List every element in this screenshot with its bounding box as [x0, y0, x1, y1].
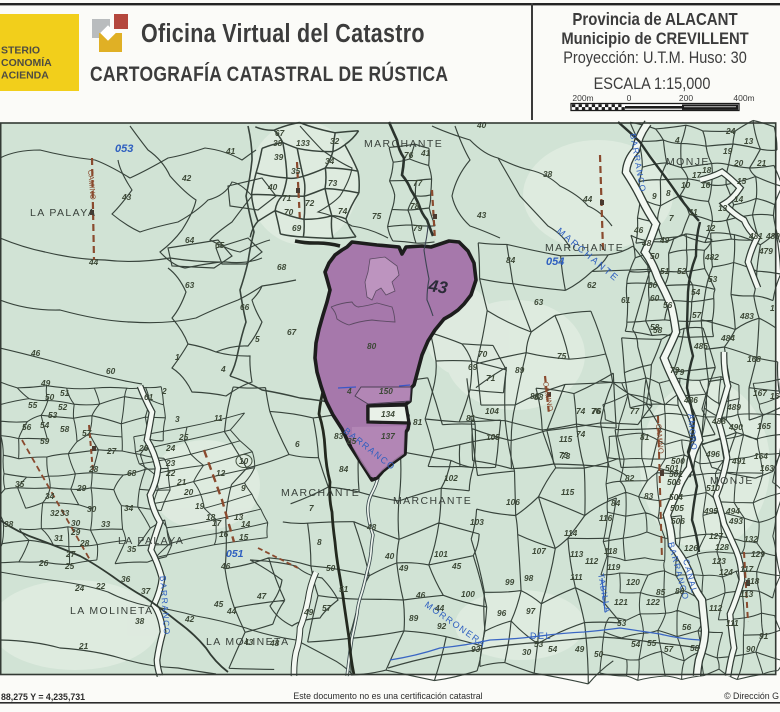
svg-text:63: 63: [534, 297, 544, 307]
svg-text:13: 13: [718, 203, 728, 213]
svg-text:484: 484: [720, 333, 735, 343]
svg-text:Municipio de CREVILLENT: Municipio de CREVILLENT: [561, 30, 749, 48]
svg-text:50: 50: [650, 251, 660, 261]
svg-text:493: 493: [728, 516, 743, 526]
svg-text:92: 92: [437, 621, 447, 631]
svg-text:104: 104: [485, 406, 499, 416]
svg-text:81: 81: [413, 417, 423, 427]
svg-text:24: 24: [725, 126, 736, 136]
svg-text:98: 98: [524, 573, 534, 583]
svg-text:481: 481: [748, 231, 763, 241]
svg-text:32: 32: [50, 508, 60, 518]
svg-text:53: 53: [48, 410, 58, 420]
svg-text:81: 81: [466, 413, 476, 423]
svg-text:57: 57: [82, 428, 92, 438]
svg-text:14: 14: [734, 194, 744, 204]
svg-text:46: 46: [30, 348, 41, 358]
svg-text:49: 49: [659, 235, 670, 245]
svg-text:19: 19: [723, 146, 733, 156]
svg-text:28: 28: [79, 538, 90, 548]
svg-text:12: 12: [706, 223, 716, 233]
svg-text:134: 134: [381, 409, 395, 419]
svg-text:84: 84: [611, 498, 621, 508]
svg-text:54: 54: [40, 420, 50, 430]
svg-text:122: 122: [646, 597, 660, 607]
svg-text:124: 124: [719, 567, 733, 577]
svg-text:83: 83: [644, 491, 654, 501]
svg-text:103: 103: [470, 517, 484, 527]
svg-text:126: 126: [684, 543, 698, 553]
svg-text:45: 45: [451, 561, 462, 571]
svg-text:31: 31: [54, 533, 64, 543]
svg-text:129: 129: [751, 549, 765, 559]
svg-text:MARCHANTE: MARCHANTE: [281, 487, 360, 499]
svg-text:57: 57: [664, 644, 674, 654]
svg-text:70: 70: [284, 207, 294, 217]
svg-text:69: 69: [292, 223, 302, 233]
svg-text:9: 9: [652, 191, 657, 201]
svg-text:500: 500: [671, 456, 685, 466]
svg-text:495: 495: [703, 506, 718, 516]
svg-text:480: 480: [765, 231, 780, 241]
svg-text:74: 74: [576, 406, 586, 416]
svg-text:60: 60: [648, 280, 658, 290]
svg-text:33: 33: [101, 519, 111, 529]
svg-text:35: 35: [127, 544, 137, 554]
svg-text:48: 48: [269, 638, 280, 648]
svg-text:16: 16: [701, 180, 711, 190]
svg-text:84: 84: [339, 464, 349, 474]
svg-text:118: 118: [746, 576, 760, 586]
svg-text:LA PALAYA: LA PALAYA: [30, 207, 96, 219]
svg-text:62: 62: [587, 280, 597, 290]
svg-text:58: 58: [690, 643, 700, 653]
svg-text:77: 77: [413, 178, 423, 188]
svg-text:504: 504: [669, 492, 683, 502]
svg-text:101: 101: [434, 549, 448, 559]
svg-text:494: 494: [725, 506, 740, 516]
svg-text:27: 27: [65, 549, 76, 559]
svg-text:25: 25: [64, 561, 75, 571]
svg-text:41: 41: [225, 146, 236, 156]
svg-text:53: 53: [534, 639, 544, 649]
svg-text:ESCALA 1:15,000: ESCALA 1:15,000: [594, 75, 711, 93]
svg-text:35: 35: [15, 479, 25, 489]
svg-text:7: 7: [309, 503, 314, 513]
svg-text:57: 57: [692, 310, 702, 320]
svg-text:38: 38: [273, 138, 283, 148]
svg-text:22: 22: [165, 468, 176, 478]
svg-text:81: 81: [640, 432, 650, 442]
svg-text:17: 17: [692, 170, 702, 180]
svg-text:118: 118: [604, 546, 618, 556]
svg-text:99: 99: [505, 577, 515, 587]
svg-text:11: 11: [214, 413, 223, 423]
svg-text:STERIO: STERIO: [1, 45, 40, 57]
svg-text:18: 18: [702, 165, 712, 175]
svg-text:76: 76: [591, 406, 601, 416]
svg-text:53: 53: [617, 618, 627, 628]
svg-text:44: 44: [88, 257, 99, 267]
svg-text:38: 38: [4, 519, 14, 529]
svg-text:53: 53: [708, 274, 718, 284]
svg-text:25: 25: [178, 432, 189, 442]
svg-text:Proyección: U.T.M. Huso: 30: Proyección: U.T.M. Huso: 30: [563, 49, 747, 67]
svg-text:85: 85: [656, 587, 666, 597]
svg-text:64: 64: [185, 235, 195, 245]
svg-text:485: 485: [693, 341, 708, 351]
svg-text:74: 74: [338, 206, 348, 216]
svg-text:510: 510: [706, 483, 720, 493]
svg-text:63: 63: [185, 280, 195, 290]
svg-text:479: 479: [758, 246, 773, 256]
svg-text:60: 60: [650, 293, 660, 303]
svg-text:32: 32: [330, 136, 340, 146]
svg-text:90: 90: [746, 644, 756, 654]
svg-text:82: 82: [625, 473, 635, 483]
svg-text:56: 56: [682, 622, 692, 632]
svg-text:43: 43: [426, 276, 449, 298]
svg-text:11: 11: [689, 207, 698, 217]
svg-text:45: 45: [213, 599, 224, 609]
svg-text:30: 30: [522, 647, 532, 657]
svg-text:115: 115: [561, 487, 575, 497]
svg-text:68: 68: [277, 262, 287, 272]
svg-text:36: 36: [121, 574, 131, 584]
svg-text:105: 105: [486, 432, 500, 442]
svg-text:CONOMÍA: CONOMÍA: [1, 56, 52, 69]
svg-text:54: 54: [631, 639, 641, 649]
svg-text:44: 44: [226, 606, 237, 616]
svg-text:6: 6: [295, 439, 300, 449]
svg-text:75: 75: [557, 351, 567, 361]
svg-text:113: 113: [570, 549, 584, 559]
svg-text:26: 26: [38, 558, 49, 568]
svg-text:22: 22: [95, 581, 106, 591]
svg-text:8: 8: [666, 188, 671, 198]
svg-text:72: 72: [305, 198, 315, 208]
svg-text:100: 100: [461, 589, 475, 599]
svg-text:112: 112: [585, 556, 599, 566]
svg-text:14: 14: [241, 519, 251, 529]
svg-text:12: 12: [216, 468, 226, 478]
svg-text:48: 48: [366, 522, 377, 532]
svg-text:69: 69: [468, 362, 478, 372]
svg-text:43: 43: [243, 637, 254, 647]
svg-text:46: 46: [415, 590, 426, 600]
svg-text:28: 28: [88, 464, 99, 474]
svg-text:9: 9: [241, 483, 246, 493]
svg-text:61: 61: [144, 392, 154, 402]
svg-text:26: 26: [138, 443, 149, 453]
svg-text:49: 49: [40, 378, 51, 388]
svg-text:MARCHANTE: MARCHANTE: [393, 495, 472, 507]
svg-text:MARCHANTE: MARCHANTE: [364, 138, 443, 150]
svg-text:505: 505: [670, 503, 684, 513]
svg-text:80: 80: [367, 341, 377, 351]
svg-text:46: 46: [220, 561, 231, 571]
svg-text:0: 0: [627, 93, 632, 103]
svg-text:84: 84: [506, 255, 516, 265]
svg-text:97: 97: [526, 606, 536, 616]
svg-text:Este documento no es una certi: Este documento no es una certificación c…: [293, 691, 482, 701]
svg-text:34: 34: [124, 503, 134, 513]
svg-text:77: 77: [630, 406, 640, 416]
svg-text:40: 40: [476, 120, 487, 130]
svg-text:4: 4: [674, 135, 680, 145]
svg-text:38: 38: [135, 616, 145, 626]
svg-text:33: 33: [60, 508, 70, 518]
svg-text:Oficina Virtual del Catastro: Oficina Virtual del Catastro: [141, 19, 425, 49]
svg-text:164: 164: [754, 451, 768, 461]
svg-text:491: 491: [731, 456, 746, 466]
svg-text:102: 102: [444, 473, 458, 483]
svg-text:58: 58: [60, 424, 70, 434]
svg-text:43: 43: [476, 210, 487, 220]
svg-text:88: 88: [534, 392, 544, 402]
svg-text:55: 55: [28, 400, 38, 410]
svg-text:42: 42: [184, 614, 195, 624]
svg-text:137: 137: [381, 431, 395, 441]
svg-text:67: 67: [287, 327, 297, 337]
svg-text:21: 21: [78, 641, 89, 651]
svg-text:163: 163: [760, 463, 774, 473]
svg-text:490: 490: [728, 422, 743, 432]
svg-text:52: 52: [677, 266, 687, 276]
svg-text:85: 85: [347, 436, 357, 446]
svg-text:74: 74: [576, 429, 586, 439]
svg-text:123: 123: [712, 556, 726, 566]
svg-text:3: 3: [175, 414, 180, 424]
svg-text:488: 488: [711, 416, 726, 426]
svg-text:112: 112: [709, 603, 723, 613]
svg-text:42: 42: [181, 173, 192, 183]
svg-text:4: 4: [220, 364, 226, 374]
svg-text:053: 053: [115, 143, 133, 155]
svg-text:503: 503: [667, 477, 681, 487]
svg-text:50: 50: [326, 563, 336, 573]
svg-text:111: 111: [570, 572, 583, 582]
svg-text:79: 79: [413, 223, 423, 233]
svg-text:107: 107: [532, 546, 546, 556]
svg-text:73: 73: [561, 451, 571, 461]
svg-text:65: 65: [215, 240, 225, 250]
svg-text:119: 119: [607, 562, 621, 572]
svg-text:29: 29: [70, 527, 81, 537]
svg-text:86: 86: [675, 586, 685, 596]
svg-text:15: 15: [737, 176, 747, 186]
svg-text:168: 168: [747, 354, 761, 364]
svg-text:61: 61: [621, 295, 631, 305]
svg-text:506: 506: [671, 516, 685, 526]
svg-text:54: 54: [548, 644, 558, 654]
svg-text:Provincia de ALACANT: Provincia de ALACANT: [572, 10, 737, 29]
svg-text:165: 165: [757, 421, 771, 431]
svg-text:17: 17: [212, 518, 222, 528]
svg-text:57: 57: [322, 603, 332, 613]
svg-text:51: 51: [60, 388, 70, 398]
svg-text:88,275 Y = 4,235,731: 88,275 Y = 4,235,731: [1, 692, 85, 702]
svg-text:58: 58: [653, 325, 663, 335]
svg-text:496: 496: [705, 449, 720, 459]
svg-text:10: 10: [239, 456, 249, 466]
svg-text:44: 44: [582, 194, 593, 204]
svg-text:49: 49: [303, 607, 314, 617]
svg-text:40: 40: [267, 182, 278, 192]
svg-text:52: 52: [58, 402, 68, 412]
svg-text:54: 54: [691, 287, 701, 297]
svg-text:483: 483: [739, 311, 754, 321]
svg-text:70: 70: [478, 349, 488, 359]
svg-text:20: 20: [733, 158, 744, 168]
svg-text:ACIENDA: ACIENDA: [1, 70, 49, 82]
svg-text:29: 29: [76, 483, 87, 493]
svg-text:2: 2: [161, 386, 167, 396]
svg-text:75: 75: [372, 211, 382, 221]
svg-text:115: 115: [559, 434, 573, 444]
svg-text:51: 51: [660, 266, 670, 276]
svg-text:79: 79: [675, 367, 685, 377]
svg-text:132: 132: [744, 534, 758, 544]
svg-text:51: 51: [339, 584, 349, 594]
svg-text:41: 41: [420, 148, 431, 158]
svg-text:89: 89: [409, 613, 419, 623]
svg-text:200: 200: [679, 93, 693, 103]
svg-text:© Dirección G: © Dirección G: [724, 691, 779, 701]
svg-text:8: 8: [317, 537, 322, 547]
svg-text:113: 113: [740, 589, 754, 599]
svg-text:486: 486: [683, 395, 698, 405]
svg-text:19: 19: [195, 501, 205, 511]
svg-text:66: 66: [240, 302, 250, 312]
svg-text:93: 93: [471, 644, 481, 654]
svg-text:111: 111: [726, 618, 739, 628]
svg-text:482: 482: [704, 252, 719, 262]
svg-text:50: 50: [594, 649, 604, 659]
svg-text:46: 46: [633, 225, 644, 235]
svg-text:054: 054: [546, 256, 564, 268]
svg-text:400m: 400m: [733, 93, 754, 103]
svg-text:44: 44: [434, 603, 445, 613]
svg-text:128: 128: [715, 542, 729, 552]
svg-text:34: 34: [45, 491, 55, 501]
svg-text:39: 39: [274, 152, 284, 162]
svg-text:21: 21: [756, 158, 767, 168]
svg-text:24: 24: [74, 583, 85, 593]
svg-text:89: 89: [515, 365, 525, 375]
svg-text:5: 5: [255, 334, 260, 344]
svg-text:120: 120: [626, 577, 640, 587]
svg-text:117: 117: [740, 564, 754, 574]
svg-text:CARTOGRAFÍA CATASTRAL DE RÚSTI: CARTOGRAFÍA CATASTRAL DE RÚSTICA: [90, 60, 448, 86]
svg-text:4: 4: [346, 386, 352, 396]
svg-text:15: 15: [239, 532, 249, 542]
svg-text:71: 71: [282, 193, 292, 203]
svg-text:96: 96: [497, 608, 507, 618]
svg-text:49: 49: [398, 563, 409, 573]
svg-text:13: 13: [744, 136, 754, 146]
svg-text:127: 127: [709, 531, 723, 541]
svg-text:67: 67: [275, 128, 285, 138]
svg-text:489: 489: [726, 402, 741, 412]
svg-text:114: 114: [564, 528, 578, 538]
svg-text:1: 1: [175, 352, 180, 362]
svg-text:133: 133: [296, 138, 310, 148]
svg-text:35: 35: [291, 166, 301, 176]
svg-text:71: 71: [486, 373, 496, 383]
svg-text:43: 43: [121, 192, 132, 202]
svg-text:34: 34: [325, 156, 335, 166]
svg-text:47: 47: [256, 591, 267, 601]
svg-text:21: 21: [176, 477, 187, 487]
svg-text:121: 121: [614, 597, 628, 607]
svg-text:40: 40: [384, 551, 395, 561]
svg-text:7: 7: [669, 213, 674, 223]
svg-text:16: 16: [219, 529, 229, 539]
svg-text:73: 73: [328, 178, 338, 188]
svg-text:106: 106: [506, 497, 520, 507]
svg-text:37: 37: [141, 586, 151, 596]
svg-text:10: 10: [681, 180, 691, 190]
svg-text:60: 60: [106, 366, 116, 376]
svg-text:91: 91: [759, 631, 769, 641]
svg-text:200m: 200m: [572, 93, 593, 103]
svg-text:50: 50: [45, 392, 55, 402]
svg-text:59: 59: [40, 436, 50, 446]
svg-text:48: 48: [641, 238, 652, 248]
svg-text:56: 56: [22, 422, 32, 432]
svg-text:051: 051: [226, 548, 244, 560]
svg-text:116: 116: [599, 513, 613, 523]
svg-text:38: 38: [543, 169, 553, 179]
svg-text:30: 30: [87, 504, 97, 514]
svg-text:55: 55: [647, 638, 657, 648]
svg-text:150: 150: [379, 386, 393, 396]
svg-text:23: 23: [165, 458, 176, 468]
svg-text:1: 1: [770, 303, 775, 313]
svg-text:49: 49: [574, 644, 585, 654]
svg-text:24: 24: [165, 443, 176, 453]
svg-text:56: 56: [663, 300, 673, 310]
svg-text:20: 20: [183, 487, 194, 497]
svg-text:83: 83: [334, 431, 344, 441]
svg-text:167: 167: [753, 388, 767, 398]
svg-text:68: 68: [127, 468, 137, 478]
svg-text:76: 76: [404, 150, 414, 160]
svg-text:78: 78: [410, 201, 420, 211]
svg-text:27: 27: [106, 446, 117, 456]
